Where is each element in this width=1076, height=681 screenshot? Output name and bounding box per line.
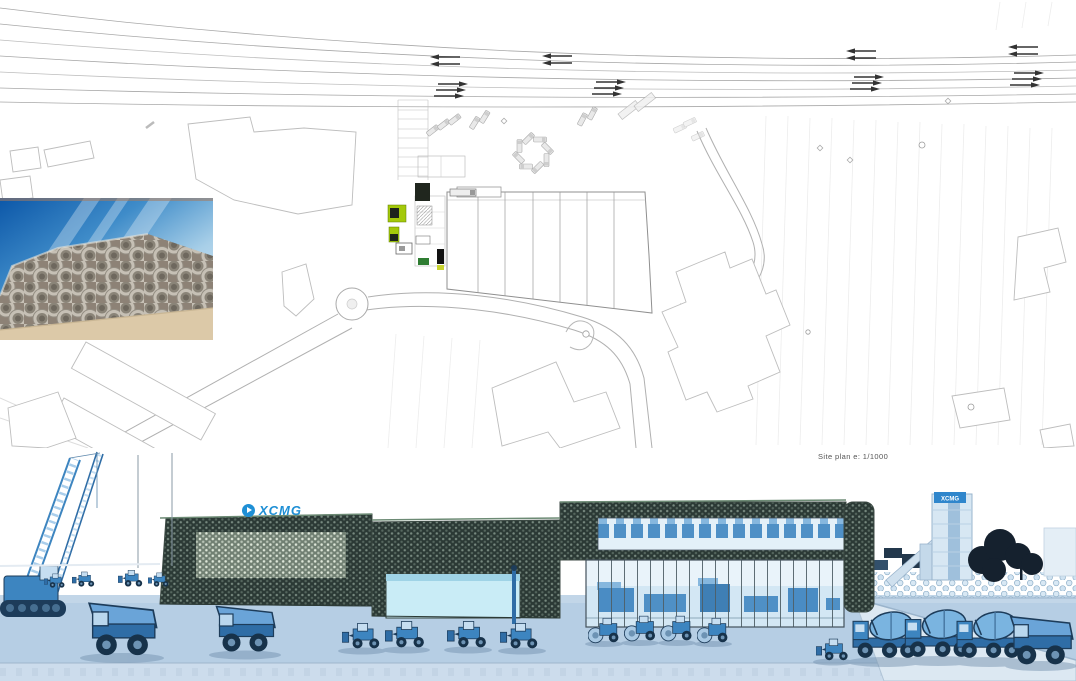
background-structure <box>1044 528 1076 576</box>
xcmg-logo: XCMG <box>242 502 302 518</box>
pipes-photo <box>0 198 213 340</box>
roundabout <box>336 288 368 320</box>
plan-vehicle-symbols <box>426 92 705 173</box>
elevation-render-panel: XCMG <box>0 448 1076 681</box>
back-wall-line <box>0 564 160 566</box>
showroom-glass-wall <box>586 560 844 627</box>
tower-sign-label: XCMG <box>941 497 959 503</box>
presentation-board: Site plan e: 1/1000 <box>0 0 1076 681</box>
pipes-photo-graphic <box>0 198 213 340</box>
crawler-crane <box>0 452 103 617</box>
xcmg-logo-icon <box>242 504 255 517</box>
facade-backlit-window <box>196 532 346 578</box>
traffic-arrows <box>430 44 1044 98</box>
clerestory-band <box>598 518 846 550</box>
main-building-plan <box>415 187 652 313</box>
site-plan-caption: Site plan e: 1/1000 <box>818 452 888 461</box>
facade-right-return <box>844 502 874 612</box>
parking-rows <box>398 100 465 180</box>
office-tower: XCMG <box>886 492 972 587</box>
xcmg-logo-text: XCMG <box>259 504 302 517</box>
highway-lines <box>0 8 1076 107</box>
